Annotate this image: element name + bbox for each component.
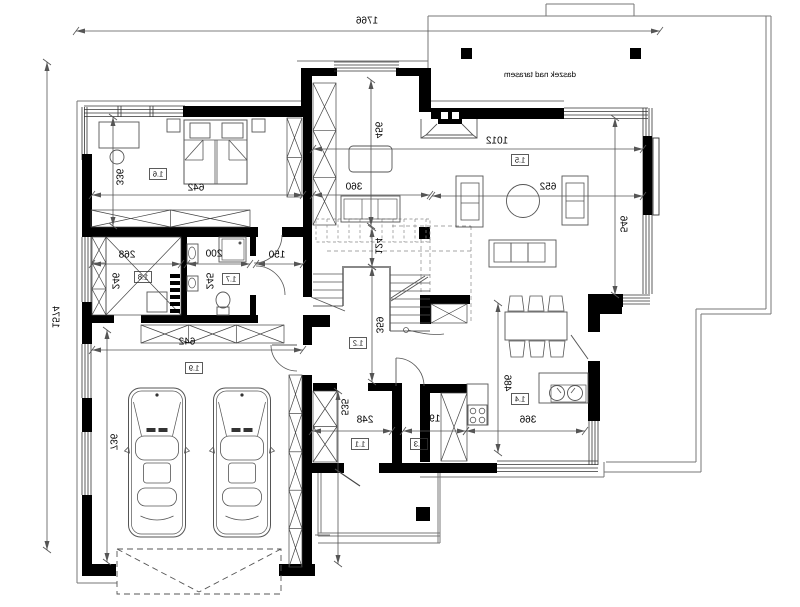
svg-text:366: 366	[519, 415, 536, 426]
svg-text:124: 124	[372, 237, 383, 254]
svg-text:736: 736	[107, 433, 118, 450]
svg-text:196: 196	[423, 414, 440, 425]
svg-text:456: 456	[372, 121, 383, 138]
svg-text:546: 546	[617, 215, 628, 232]
svg-text:359: 359	[373, 316, 384, 333]
svg-text:1.9: 1.9	[189, 363, 199, 372]
svg-text:248: 248	[356, 415, 373, 426]
svg-text:336: 336	[113, 168, 124, 185]
svg-text:1.2: 1.2	[353, 338, 363, 347]
svg-text:150: 150	[268, 250, 285, 261]
svg-text:daszek nad tarasem: daszek nad tarasem	[504, 70, 576, 79]
svg-text:486: 486	[501, 374, 512, 391]
svg-text:1.1: 1.1	[355, 439, 365, 448]
svg-text:642: 642	[178, 337, 195, 348]
svg-text:1.7: 1.7	[226, 274, 236, 283]
svg-text:1.3: 1.3	[414, 439, 424, 448]
svg-text:1.8: 1.8	[138, 272, 148, 281]
svg-text:1.4: 1.4	[515, 394, 525, 403]
svg-text:200: 200	[205, 249, 222, 260]
svg-text:535: 535	[338, 398, 349, 415]
svg-text:246: 246	[109, 272, 120, 289]
svg-text:642: 642	[187, 183, 204, 194]
svg-text:245: 245	[203, 272, 214, 289]
svg-text:1.5: 1.5	[515, 155, 525, 164]
svg-text:1012: 1012	[485, 136, 508, 147]
svg-text:1.6: 1.6	[153, 169, 163, 178]
svg-text:1766: 1766	[355, 16, 378, 27]
svg-text:652: 652	[539, 182, 556, 193]
svg-text:268: 268	[118, 250, 135, 261]
svg-text:360: 360	[345, 182, 362, 193]
svg-text:1574: 1574	[49, 305, 60, 328]
